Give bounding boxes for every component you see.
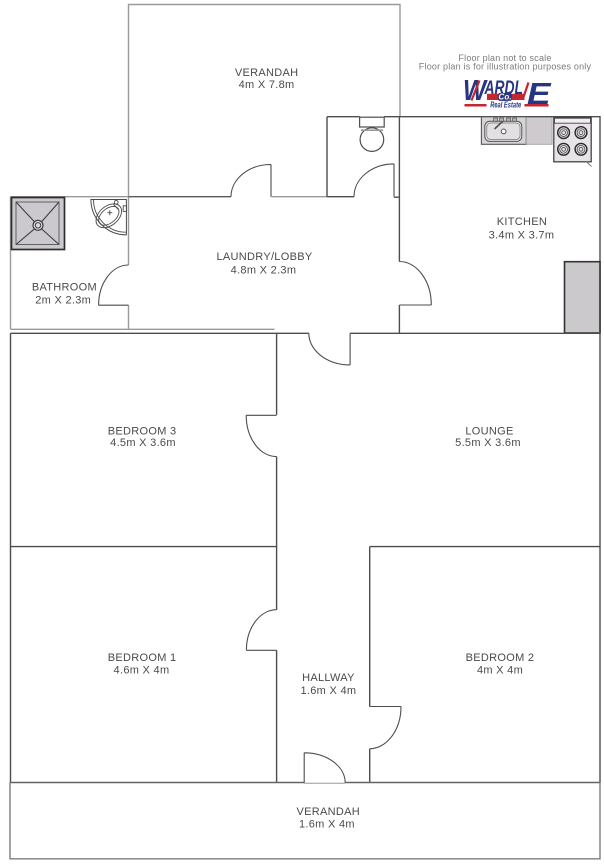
svg-text:LOUNGE: LOUNGE (465, 425, 513, 437)
svg-text:BEDROOM 2: BEDROOM 2 (466, 652, 535, 664)
svg-text:2m X 2.3m: 2m X 2.3m (35, 294, 91, 306)
svg-text:BATHROOM: BATHROOM (32, 282, 97, 294)
svg-text:4m X 7.8m: 4m X 7.8m (239, 79, 295, 91)
svg-text:4.8m X 2.3m: 4.8m X 2.3m (231, 265, 297, 277)
svg-text:5.5m X 3.6m: 5.5m X 3.6m (455, 437, 521, 449)
svg-text:Real Estate: Real Estate (490, 101, 521, 110)
svg-text:VERANDAH: VERANDAH (235, 67, 299, 79)
svg-text:BEDROOM 3: BEDROOM 3 (108, 425, 177, 437)
svg-text:1.6m X 4m: 1.6m X 4m (299, 819, 355, 831)
svg-text:4.5m X 3.6m: 4.5m X 3.6m (110, 437, 176, 449)
svg-text:BEDROOM 1: BEDROOM 1 (108, 652, 177, 664)
svg-text:4.6m X 4m: 4.6m X 4m (114, 665, 170, 677)
svg-text:Floor plan is for illustration: Floor plan is for illustration purposes … (419, 61, 592, 71)
svg-text:HALLWAY: HALLWAY (302, 672, 355, 684)
svg-text:LAUNDRY/LOBBY: LAUNDRY/LOBBY (216, 251, 312, 263)
svg-text:VERANDAH: VERANDAH (297, 806, 361, 818)
svg-text:1.6m X 4m: 1.6m X 4m (300, 685, 356, 697)
svg-text:KITCHEN: KITCHEN (497, 216, 547, 228)
svg-text:3.4m X 3.7m: 3.4m X 3.7m (489, 229, 555, 241)
svg-text:4m X 4m: 4m X 4m (477, 665, 523, 677)
